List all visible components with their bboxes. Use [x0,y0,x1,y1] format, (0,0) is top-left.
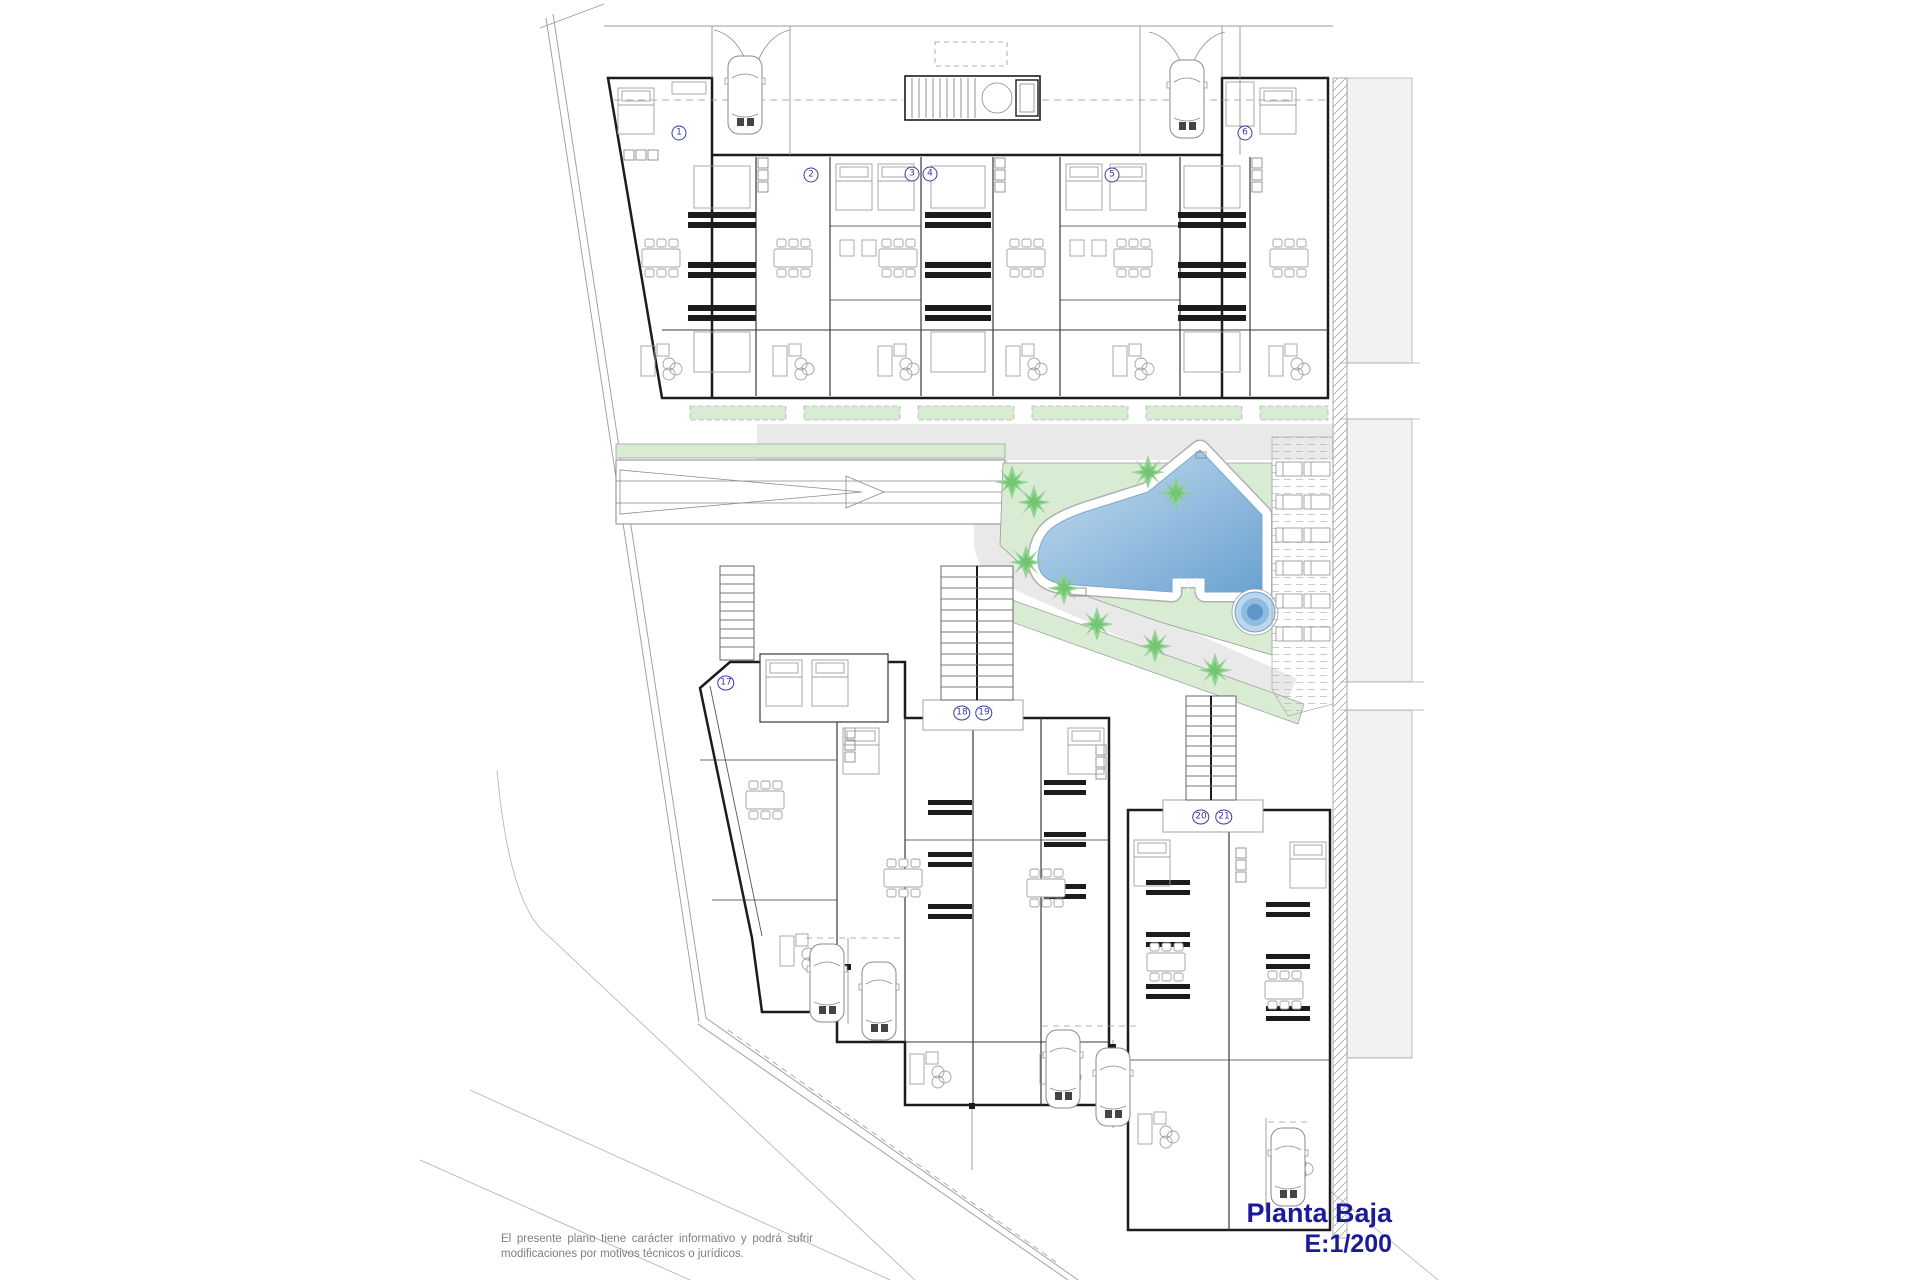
disclaimer-line-1: El presente plano tiene carácter informa… [501,1232,813,1247]
unit-marker: 1 [672,126,687,141]
plan-title: Planta Baja [1080,1198,1392,1230]
building-upper [608,78,1328,398]
unit-marker: 5 [1105,168,1120,183]
disclaimer-line-2: modificaciones por motivos técnicos o ju… [501,1247,813,1262]
disclaimer-text: El presente plano tiene carácter informa… [501,1232,813,1262]
stair-18-19 [941,566,1013,700]
site-plan-drawing [0,0,1920,1280]
unit-marker: 4 [923,167,938,182]
sun-deck [1272,437,1333,716]
unit-marker: 3 [905,167,920,182]
boundary-hatch-wall [1333,78,1347,1238]
neighbor-parcels [1347,78,1412,1058]
stair-17 [720,566,754,660]
plan-scale: E:1/200 [1080,1230,1392,1260]
planting-strips [690,406,1328,420]
floor-plan-canvas: 1234561718192021 Planta Baja E:1/200 El … [0,0,1920,1280]
unit-marker: 2 [804,168,819,183]
stair-20-21 [1186,696,1236,800]
garage-ramp [616,444,1005,524]
entry-vestibule-18-19 [923,700,1023,730]
jacuzzi [1232,589,1278,635]
entry-vestibule-20-21 [1163,800,1263,832]
unit-marker: 6 [1238,126,1253,141]
drawing-title-block: Planta Baja E:1/200 [1080,1198,1392,1259]
stair-lift-block-top [905,42,1040,120]
